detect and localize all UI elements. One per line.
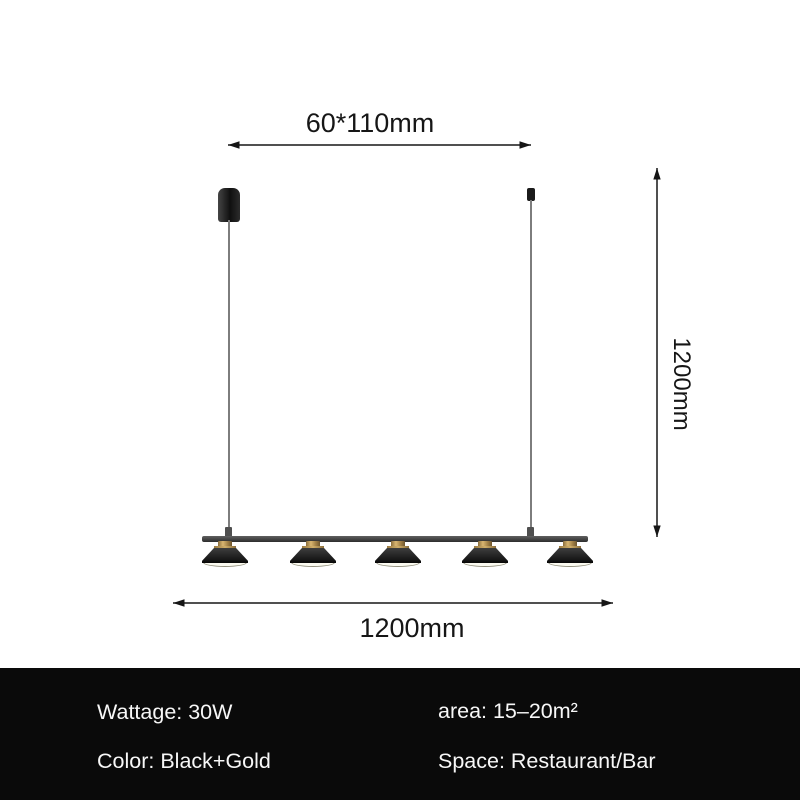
lamp-head bbox=[202, 541, 248, 568]
lamp-shade bbox=[290, 548, 336, 563]
lamp-head bbox=[462, 541, 508, 568]
lamp-head bbox=[290, 541, 336, 568]
lamp-head bbox=[375, 541, 421, 568]
suspension-wire-left bbox=[228, 220, 230, 539]
ceiling-canopy bbox=[218, 188, 240, 222]
spec-footer: Wattage: 30W area: 15–20m² Color: Black+… bbox=[0, 668, 800, 800]
lamp-shade bbox=[375, 548, 421, 563]
canopy-width-arrow bbox=[228, 141, 531, 148]
spec-area: area: 15–20m² bbox=[438, 699, 578, 724]
spec-wattage: Wattage: 30W bbox=[97, 700, 232, 725]
spec-space: Space: Restaurant/Bar bbox=[438, 749, 656, 774]
fixture-length-arrow bbox=[173, 599, 613, 606]
drop-height-arrow bbox=[653, 168, 660, 537]
lamp-shade bbox=[547, 548, 593, 563]
drop-height-label: 1200mm bbox=[667, 337, 695, 430]
lamp-shade bbox=[462, 548, 508, 563]
suspension-wire-right bbox=[530, 200, 532, 539]
canopy-dimension-label: 60*110mm bbox=[306, 108, 435, 139]
product-dimension-diagram: 60*110mm 1200mm 1200mm bbox=[0, 0, 800, 800]
spec-color: Color: Black+Gold bbox=[97, 749, 271, 774]
lamp-head bbox=[547, 541, 593, 568]
fixture-length-label: 1200mm bbox=[359, 613, 464, 644]
lamp-shade bbox=[202, 548, 248, 563]
